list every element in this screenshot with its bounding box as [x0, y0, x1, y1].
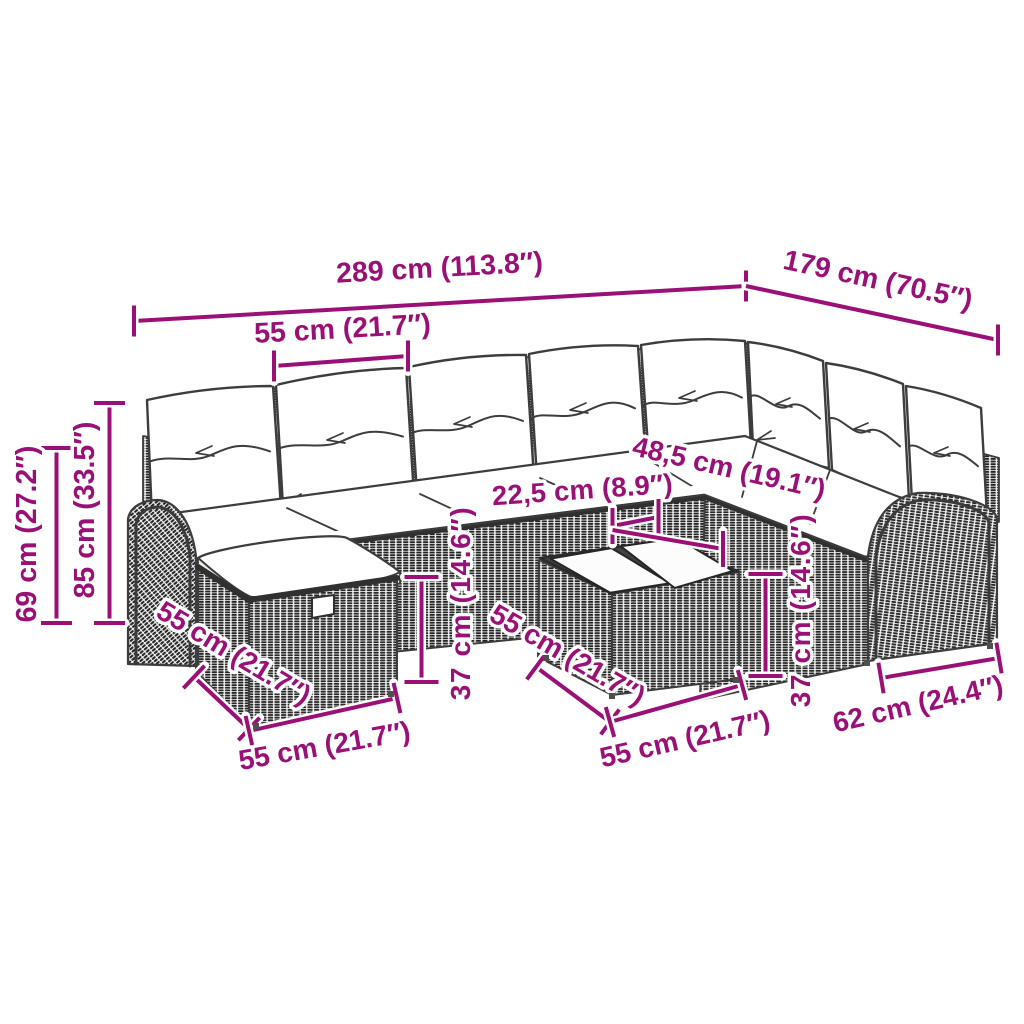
- svg-text:85 cm (33.5″): 85 cm (33.5″): [69, 422, 101, 599]
- svg-text:37 cm (14.6″): 37 cm (14.6″): [445, 506, 476, 701]
- svg-text:37 cm (14.6″): 37 cm (14.6″): [785, 513, 816, 708]
- svg-text:69 cm (27.2″): 69 cm (27.2″): [11, 446, 43, 623]
